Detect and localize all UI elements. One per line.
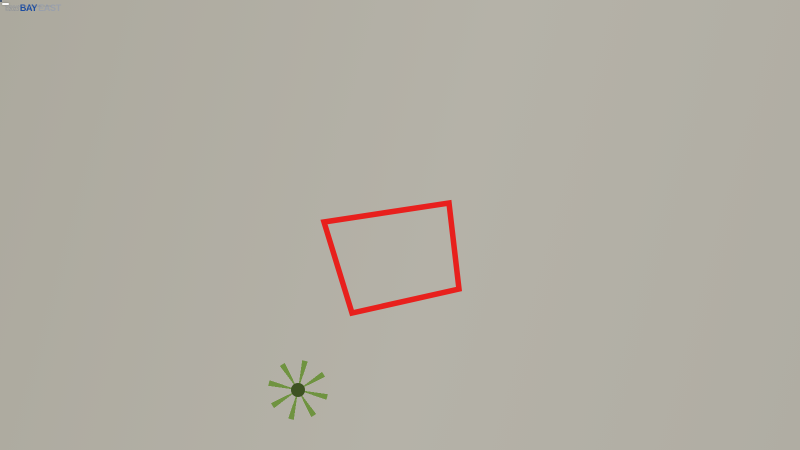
boulevard bbox=[0, 21, 800, 295]
aerial-photo: ©2023 BAY EAST ASSOCIATION OF REALTORS bbox=[0, 0, 800, 450]
solar-panel-array bbox=[0, 0, 2, 2]
watermark-subtitle: ASSOCIATION OF REALTORS bbox=[5, 5, 51, 8]
palm-core bbox=[291, 383, 305, 397]
watermark-year: ©2023 bbox=[5, 8, 19, 13]
watermark-bayeast: ©2023 BAY EAST ASSOCIATION OF REALTORS bbox=[2, 3, 9, 5]
palm-tree bbox=[268, 360, 328, 420]
